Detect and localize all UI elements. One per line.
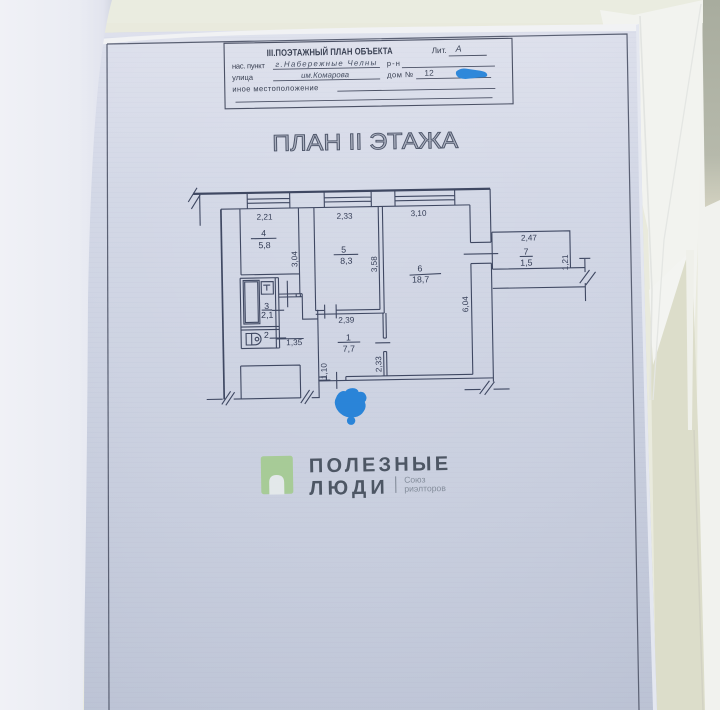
svg-text:улица: улица xyxy=(232,73,254,82)
svg-text:ПОЛЕЗНЫЕ: ПОЛЕЗНЫЕ xyxy=(309,453,450,477)
svg-text:2,33: 2,33 xyxy=(374,356,383,373)
svg-text:дом №: дом № xyxy=(387,70,413,79)
svg-text:2: 2 xyxy=(264,330,269,340)
svg-text:6,04: 6,04 xyxy=(461,296,470,313)
svg-text:1: 1 xyxy=(346,332,351,342)
svg-text:4: 4 xyxy=(261,228,266,238)
svg-text:А: А xyxy=(455,44,462,54)
svg-text:3,10: 3,10 xyxy=(410,209,427,218)
svg-text:2,39: 2,39 xyxy=(338,316,355,325)
svg-text:7: 7 xyxy=(523,247,528,257)
svg-text:7,7: 7,7 xyxy=(343,344,356,354)
svg-text:1,35: 1,35 xyxy=(286,338,303,347)
svg-text:нас. пункт: нас. пункт xyxy=(232,61,266,71)
svg-text:ЛЮДИ: ЛЮДИ xyxy=(309,477,389,500)
svg-text:1,5: 1,5 xyxy=(520,257,533,267)
svg-text:18,7: 18,7 xyxy=(412,274,429,284)
svg-text:Лит.: Лит. xyxy=(432,46,447,55)
svg-text:3,58: 3,58 xyxy=(370,256,379,273)
svg-text:5: 5 xyxy=(341,245,346,255)
svg-text:III.ПОЭТАЖНЫЙ ПЛАН ОБЪЕКТА: III.ПОЭТАЖНЫЙ ПЛАН ОБЪЕКТА xyxy=(267,45,393,58)
svg-text:5,8: 5,8 xyxy=(258,240,271,250)
svg-text:2,33: 2,33 xyxy=(336,212,353,221)
svg-text:2,1: 2,1 xyxy=(261,310,274,320)
svg-text:1,10: 1,10 xyxy=(320,363,329,380)
svg-text:ПЛАН II ЭТАЖА: ПЛАН II ЭТАЖА xyxy=(272,127,459,156)
svg-text:8,3: 8,3 xyxy=(340,256,353,266)
svg-text:иное местоположение: иное местоположение xyxy=(232,83,318,93)
svg-text:1,21: 1,21 xyxy=(561,254,570,271)
svg-text:им.Комарова: им.Комарова xyxy=(301,70,350,80)
svg-text:р-н: р-н xyxy=(387,59,400,68)
svg-text:3,04: 3,04 xyxy=(290,251,299,268)
svg-text:2,47: 2,47 xyxy=(521,233,538,242)
svg-text:6: 6 xyxy=(417,263,422,273)
svg-text:2,21: 2,21 xyxy=(256,213,273,222)
svg-text:риэлторов: риэлторов xyxy=(404,483,446,494)
svg-text:12: 12 xyxy=(424,68,434,78)
